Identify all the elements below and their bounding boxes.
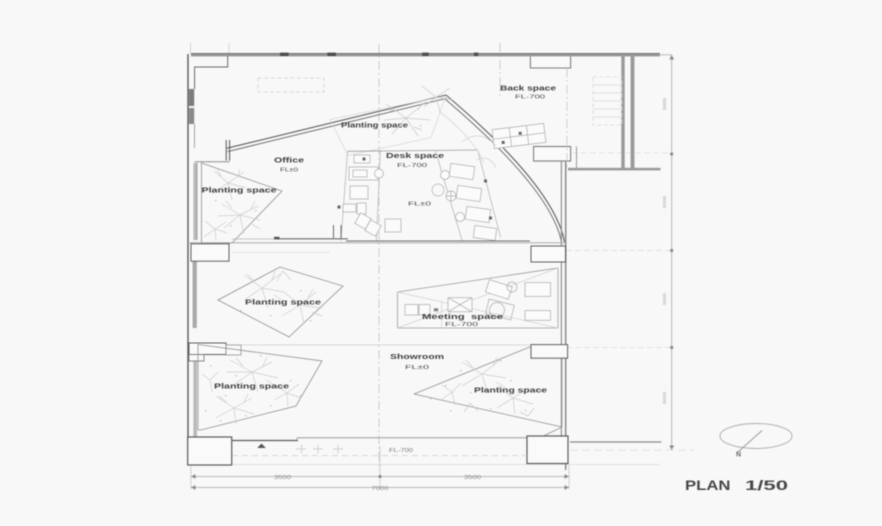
svg-text:FL-700: FL-700 bbox=[397, 163, 427, 169]
svg-text:FL-700: FL-700 bbox=[445, 322, 478, 328]
svg-text:3500: 3500 bbox=[274, 475, 291, 481]
svg-text:FL±0: FL±0 bbox=[408, 202, 431, 208]
svg-text:FL±0: FL±0 bbox=[405, 365, 429, 371]
svg-text:FL-700: FL-700 bbox=[515, 95, 545, 101]
svg-text:PLAN: PLAN bbox=[685, 477, 731, 493]
svg-text:5000: 5000 bbox=[662, 391, 667, 404]
svg-text:Planting space: Planting space bbox=[474, 386, 547, 395]
svg-text:FL±0: FL±0 bbox=[280, 168, 298, 174]
svg-text:N: N bbox=[736, 452, 741, 459]
svg-text:Back space: Back space bbox=[500, 84, 556, 93]
svg-text:Planting space: Planting space bbox=[341, 121, 408, 130]
svg-text:1/50: 1/50 bbox=[745, 477, 788, 493]
svg-text:5000: 5000 bbox=[662, 292, 667, 305]
svg-text:Showroom: Showroom bbox=[390, 352, 444, 361]
svg-text:Planting space: Planting space bbox=[214, 382, 289, 391]
svg-text:3500: 3500 bbox=[464, 475, 481, 481]
svg-text:Planting space: Planting space bbox=[202, 186, 277, 195]
svg-text:7000: 7000 bbox=[372, 486, 389, 492]
svg-text:5000: 5000 bbox=[662, 97, 667, 110]
svg-text:Planting space: Planting space bbox=[245, 298, 321, 307]
svg-text:FL-700: FL-700 bbox=[389, 448, 413, 454]
svg-text:Desk space: Desk space bbox=[386, 151, 444, 160]
svg-text:Meeting space: Meeting space bbox=[422, 312, 503, 321]
svg-text:5000: 5000 bbox=[662, 195, 667, 208]
svg-text:Office: Office bbox=[274, 156, 304, 165]
